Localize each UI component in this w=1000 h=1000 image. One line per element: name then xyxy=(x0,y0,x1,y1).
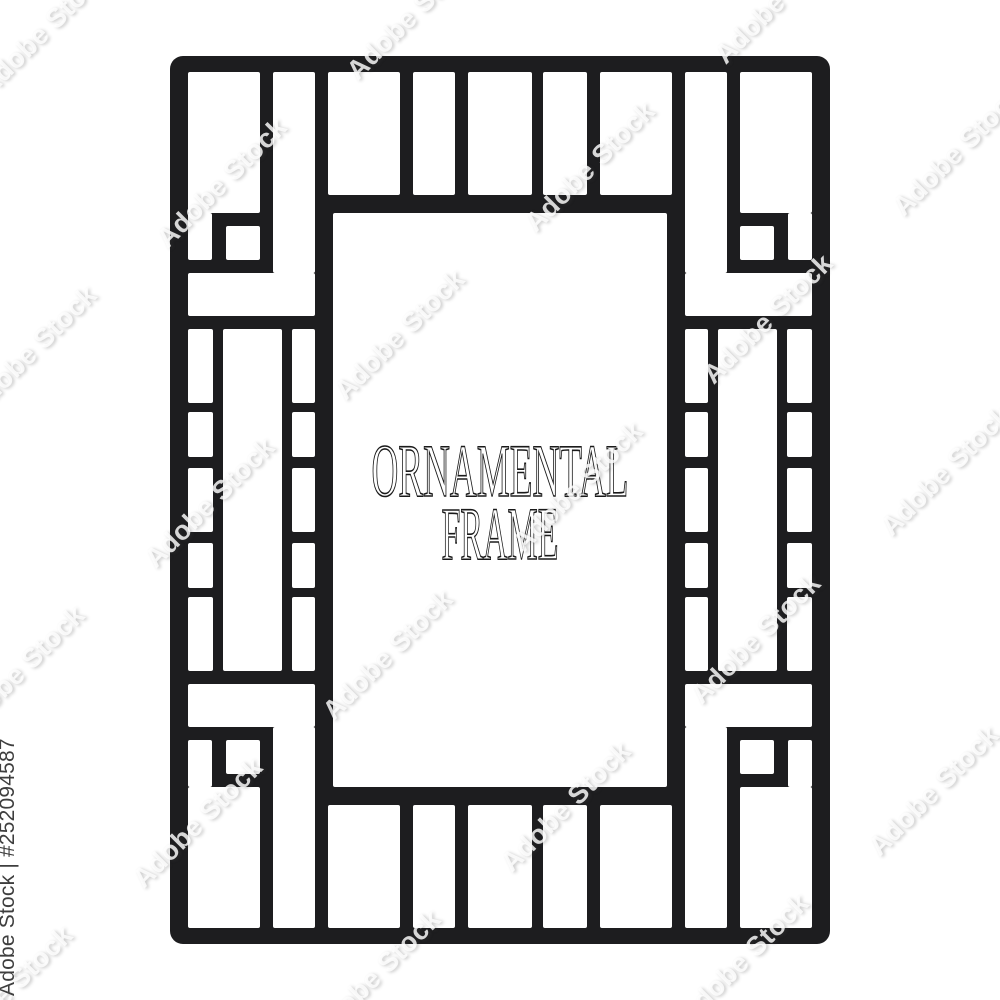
stock-image-canvas: ORNAMENTAL FRAME Adobe StockAdobe StockA… xyxy=(0,0,1000,1000)
frame-corner-top-right xyxy=(685,72,812,316)
frame-ladder-right xyxy=(685,329,812,671)
frame-ladder-left xyxy=(188,329,315,671)
stock-id-watermark: Adobe Stock | #252094587 xyxy=(0,738,20,996)
frame-corner-top-left xyxy=(188,72,315,316)
ornamental-frame-graphic: ORNAMENTAL FRAME xyxy=(0,0,1000,1000)
frame-corner-bottom-right xyxy=(685,684,812,928)
frame-title-line2: FRAME xyxy=(442,493,559,576)
frame-bottom-slats xyxy=(328,805,672,928)
frame-corner-bottom-left xyxy=(188,684,315,928)
frame-top-slats xyxy=(328,72,672,195)
